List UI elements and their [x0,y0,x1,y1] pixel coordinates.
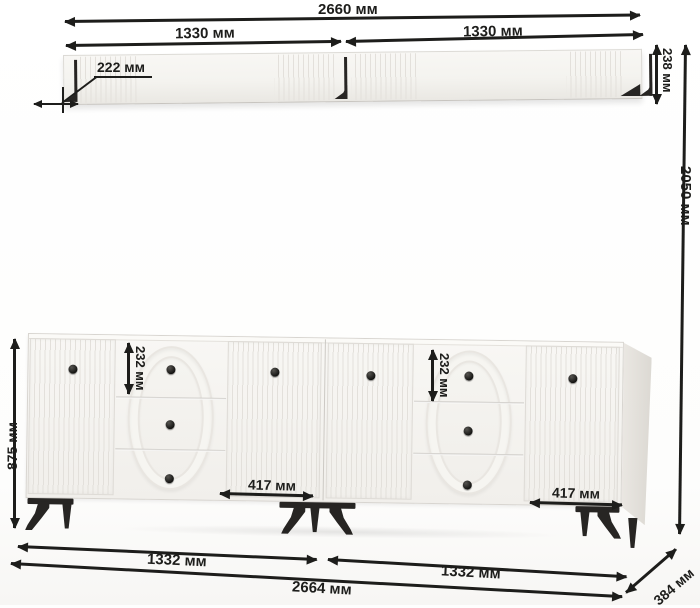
drawer-knob [464,426,473,435]
drawer-knob [463,480,472,489]
shelf-fluting [274,54,334,101]
shelf-depth-leader-line [94,76,152,78]
shelf-depth-label: 222 мм [97,60,145,74]
shelf-total-width-label: 2660 мм [318,2,378,17]
overall-height-label: 2050 мм [678,166,693,226]
door-knob [568,374,577,383]
shelf-fluting [566,51,624,98]
drawer-stack-left [115,339,227,497]
shelf-left-width-arrow [66,40,341,47]
door-right-inner [326,342,414,499]
drawer-knob [165,474,174,483]
drawer-stack-right [413,344,525,502]
shelf-depth-tick [62,87,64,113]
shelf-depth-arrow [34,103,78,105]
door-right-outer [524,345,620,502]
door-knob [366,371,375,380]
shelf-bracket-right [639,54,652,96]
door-left-inner [226,341,322,498]
drawer-knob [166,365,175,374]
cabinet-total-width-label: 2664 мм [292,579,352,597]
drawer-knob [166,420,175,429]
shelf-fluting [351,53,416,100]
drawer-knob [464,371,473,380]
sideboard [24,333,687,583]
cabinet-height-label: 875 мм [5,422,19,470]
door-left-outer [28,338,116,495]
drawer-height-arrow-left [127,343,130,394]
cabinet-right-width-label: 1332 мм [441,563,501,581]
drawer-height-label-left: 232 мм [134,346,147,391]
door-width-label-right: 417 мм [552,485,600,500]
door-knob [270,368,279,377]
sideboard-side-panel [621,343,652,525]
shelf-height-label: 238 мм [661,48,674,93]
cabinet-left-width-label: 1332 мм [147,552,207,570]
furniture-dimension-diagram: 2660 мм 1330 мм 1330 мм 222 мм 238 мм 20… [0,0,700,605]
shelf-height-arrow [655,45,658,104]
shelf-bracket-center [334,57,347,99]
drawer-height-label-right: 232 мм [438,353,451,398]
door-knob [68,365,77,374]
drawer-height-arrow-right [431,350,434,401]
shelf-left-width-label: 1330 мм [175,26,235,42]
door-width-label-left: 417 мм [248,477,296,492]
